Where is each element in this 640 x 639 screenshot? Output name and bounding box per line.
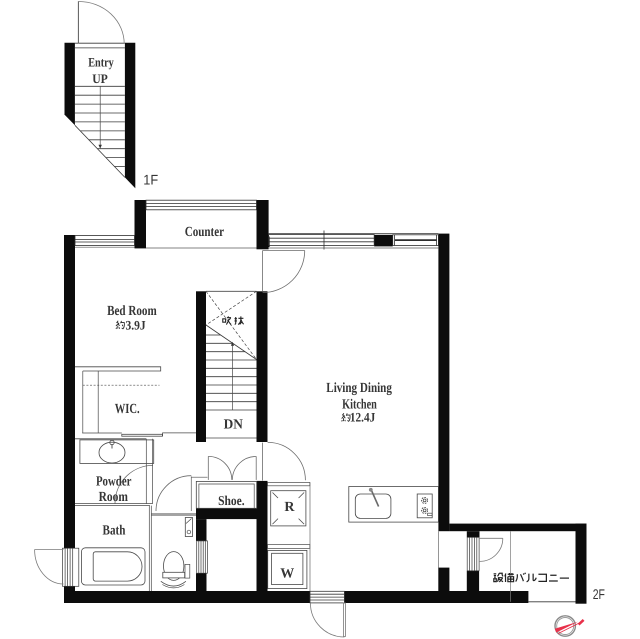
svg-text:Entry: Entry bbox=[88, 55, 114, 70]
svg-text:2F: 2F bbox=[593, 586, 605, 602]
svg-text:1F: 1F bbox=[143, 171, 158, 187]
svg-text:W: W bbox=[280, 567, 294, 582]
svg-text:3.9J: 3.9J bbox=[126, 317, 147, 332]
svg-text:Shoe.: Shoe. bbox=[218, 493, 245, 508]
svg-text:Living Dining: Living Dining bbox=[326, 381, 392, 396]
svg-text:DN: DN bbox=[224, 417, 243, 432]
svg-text:Counter: Counter bbox=[185, 225, 224, 240]
svg-text:Powder: Powder bbox=[96, 475, 132, 490]
svg-text:Bath: Bath bbox=[103, 523, 126, 538]
svg-text:UP: UP bbox=[92, 71, 108, 86]
svg-text:12.4J: 12.4J bbox=[350, 410, 376, 425]
svg-text:WIC.: WIC. bbox=[115, 402, 140, 417]
svg-text:R: R bbox=[284, 500, 295, 515]
svg-text:Room: Room bbox=[99, 490, 129, 505]
